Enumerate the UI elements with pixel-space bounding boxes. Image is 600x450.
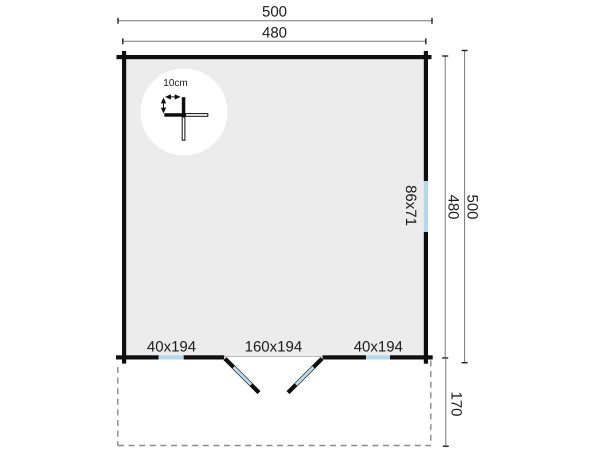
svg-text:500: 500 xyxy=(464,194,481,219)
svg-text:480: 480 xyxy=(262,24,287,41)
svg-text:10cm: 10cm xyxy=(163,78,187,89)
svg-text:480: 480 xyxy=(444,194,461,219)
svg-text:40x194: 40x194 xyxy=(354,338,403,355)
svg-text:86x71: 86x71 xyxy=(402,185,419,226)
svg-text:170: 170 xyxy=(448,391,465,416)
svg-text:40x194: 40x194 xyxy=(147,338,196,355)
svg-text:160x194: 160x194 xyxy=(245,338,303,355)
svg-text:500: 500 xyxy=(262,4,287,21)
